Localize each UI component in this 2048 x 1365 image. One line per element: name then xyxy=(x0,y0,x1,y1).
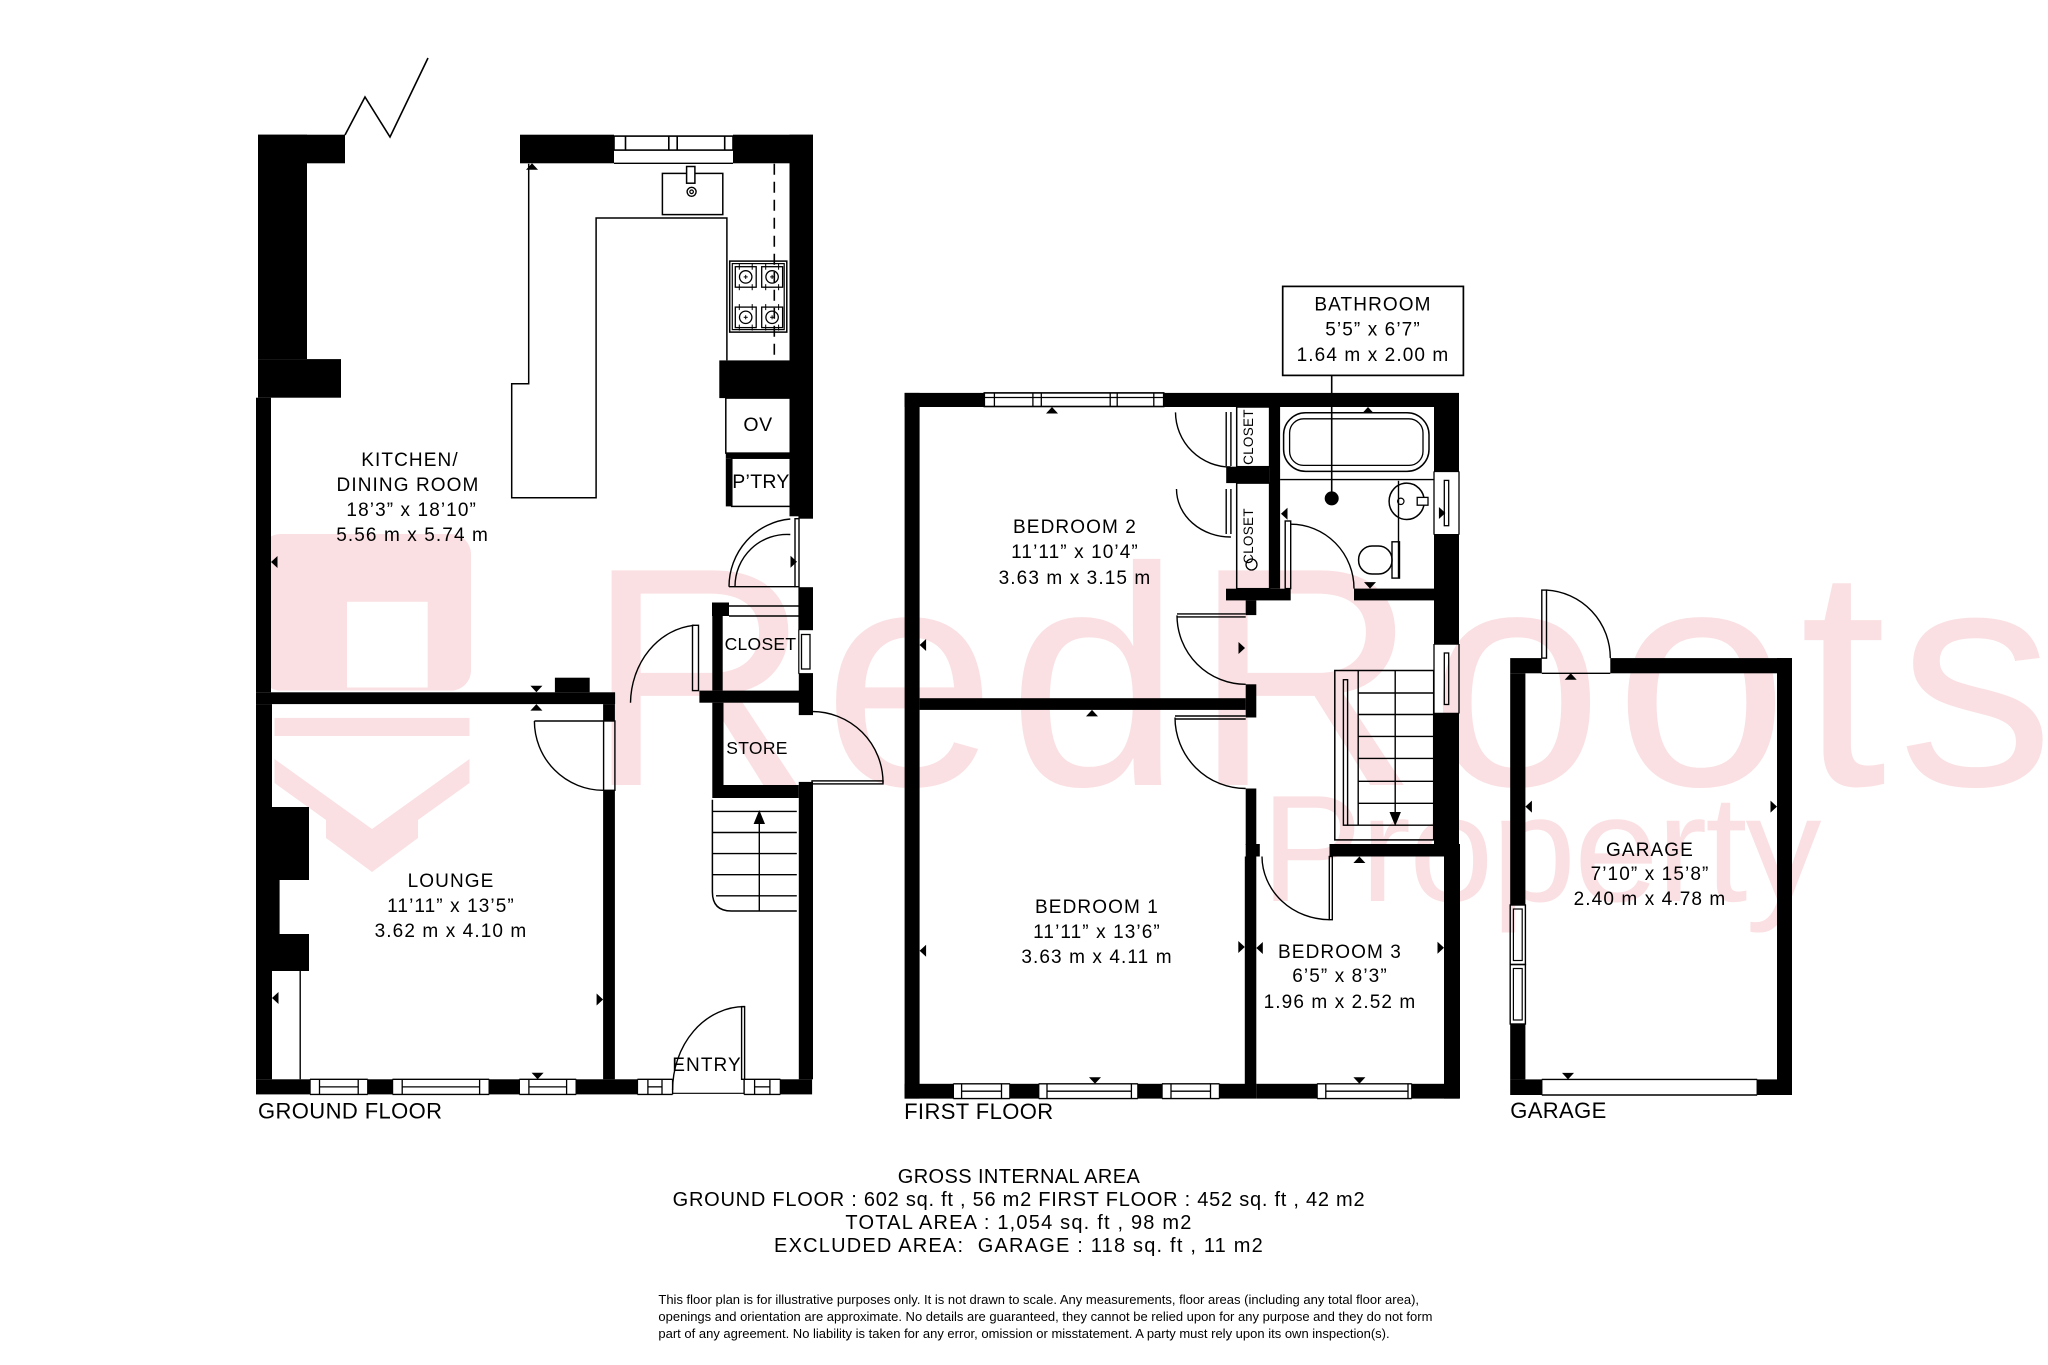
svg-text:18’3” x 18’10”: 18’3” x 18’10” xyxy=(346,500,477,521)
svg-text:6’5” x 8’3”: 6’5” x 8’3” xyxy=(1292,966,1388,987)
svg-text:GROSS INTERNAL AREA: GROSS INTERNAL AREA xyxy=(898,1166,1141,1188)
svg-text:11’11” x 10’4”: 11’11” x 10’4” xyxy=(1011,542,1139,563)
svg-text:LOUNGE: LOUNGE xyxy=(408,871,495,892)
svg-text:openings and orientation are a: openings and orientation are approximate… xyxy=(658,1309,1432,1324)
svg-text:ENTRY: ENTRY xyxy=(672,1055,742,1076)
svg-text:GROUND FLOOR : 602 sq. ft , 56: GROUND FLOOR : 602 sq. ft , 56 m2 FIRST … xyxy=(673,1189,1366,1211)
svg-text:3.63 m x 3.15 m: 3.63 m x 3.15 m xyxy=(999,568,1152,589)
svg-text:OV: OV xyxy=(743,414,772,436)
svg-text:11’11” x 13’5”: 11’11” x 13’5” xyxy=(387,896,515,917)
svg-text:DINING ROOM: DINING ROOM xyxy=(337,475,480,496)
svg-text:BEDROOM 1: BEDROOM 1 xyxy=(1035,897,1159,918)
svg-text:GROUND FLOOR: GROUND FLOOR xyxy=(258,1099,442,1124)
svg-text:KITCHEN/: KITCHEN/ xyxy=(361,450,458,471)
svg-text:STORE: STORE xyxy=(726,738,787,758)
svg-text:BATHROOM: BATHROOM xyxy=(1314,295,1431,316)
svg-text:CLOSET: CLOSET xyxy=(1241,508,1256,564)
svg-text:5’5” x 6’7”: 5’5” x 6’7” xyxy=(1325,320,1421,341)
svg-text:BEDROOM 2: BEDROOM 2 xyxy=(1013,517,1137,538)
svg-text:GARAGE: GARAGE xyxy=(1510,1098,1607,1123)
svg-text:3.62 m x 4.10 m: 3.62 m x 4.10 m xyxy=(375,921,528,942)
svg-text:11’11” x 13’6”: 11’11” x 13’6” xyxy=(1033,922,1161,943)
svg-text:1.64 m x 2.00 m: 1.64 m x 2.00 m xyxy=(1297,345,1450,366)
svg-text:EXCLUDED AREA: GARAGE : 118 s: EXCLUDED AREA: GARAGE : 118 sq. ft , 11 … xyxy=(774,1235,1264,1257)
svg-text:5.56 m x 5.74 m: 5.56 m x 5.74 m xyxy=(336,525,489,546)
svg-text:1.96 m x 2.52 m: 1.96 m x 2.52 m xyxy=(1264,992,1417,1013)
svg-text:7’10” x 15’8”: 7’10” x 15’8” xyxy=(1591,864,1710,885)
svg-text:CLOSET: CLOSET xyxy=(1241,409,1256,465)
svg-text:2.40 m x 4.78 m: 2.40 m x 4.78 m xyxy=(1574,889,1727,910)
svg-text:CLOSET: CLOSET xyxy=(725,634,797,654)
svg-text:FIRST FLOOR: FIRST FLOOR xyxy=(904,1099,1053,1124)
svg-text:P’TRY: P’TRY xyxy=(732,471,790,493)
svg-text:TOTAL AREA : 1,054 sq. ft , 98: TOTAL AREA : 1,054 sq. ft , 98 m2 xyxy=(845,1212,1192,1234)
svg-text:This floor plan is for illustr: This floor plan is for illustrative purp… xyxy=(658,1292,1419,1307)
svg-text:BEDROOM 3: BEDROOM 3 xyxy=(1278,942,1402,963)
svg-text:part of any agreement. No liab: part of any agreement. No liability is t… xyxy=(658,1326,1389,1341)
svg-text:GARAGE: GARAGE xyxy=(1606,840,1694,861)
svg-text:3.63 m x 4.11 m: 3.63 m x 4.11 m xyxy=(1021,947,1172,968)
